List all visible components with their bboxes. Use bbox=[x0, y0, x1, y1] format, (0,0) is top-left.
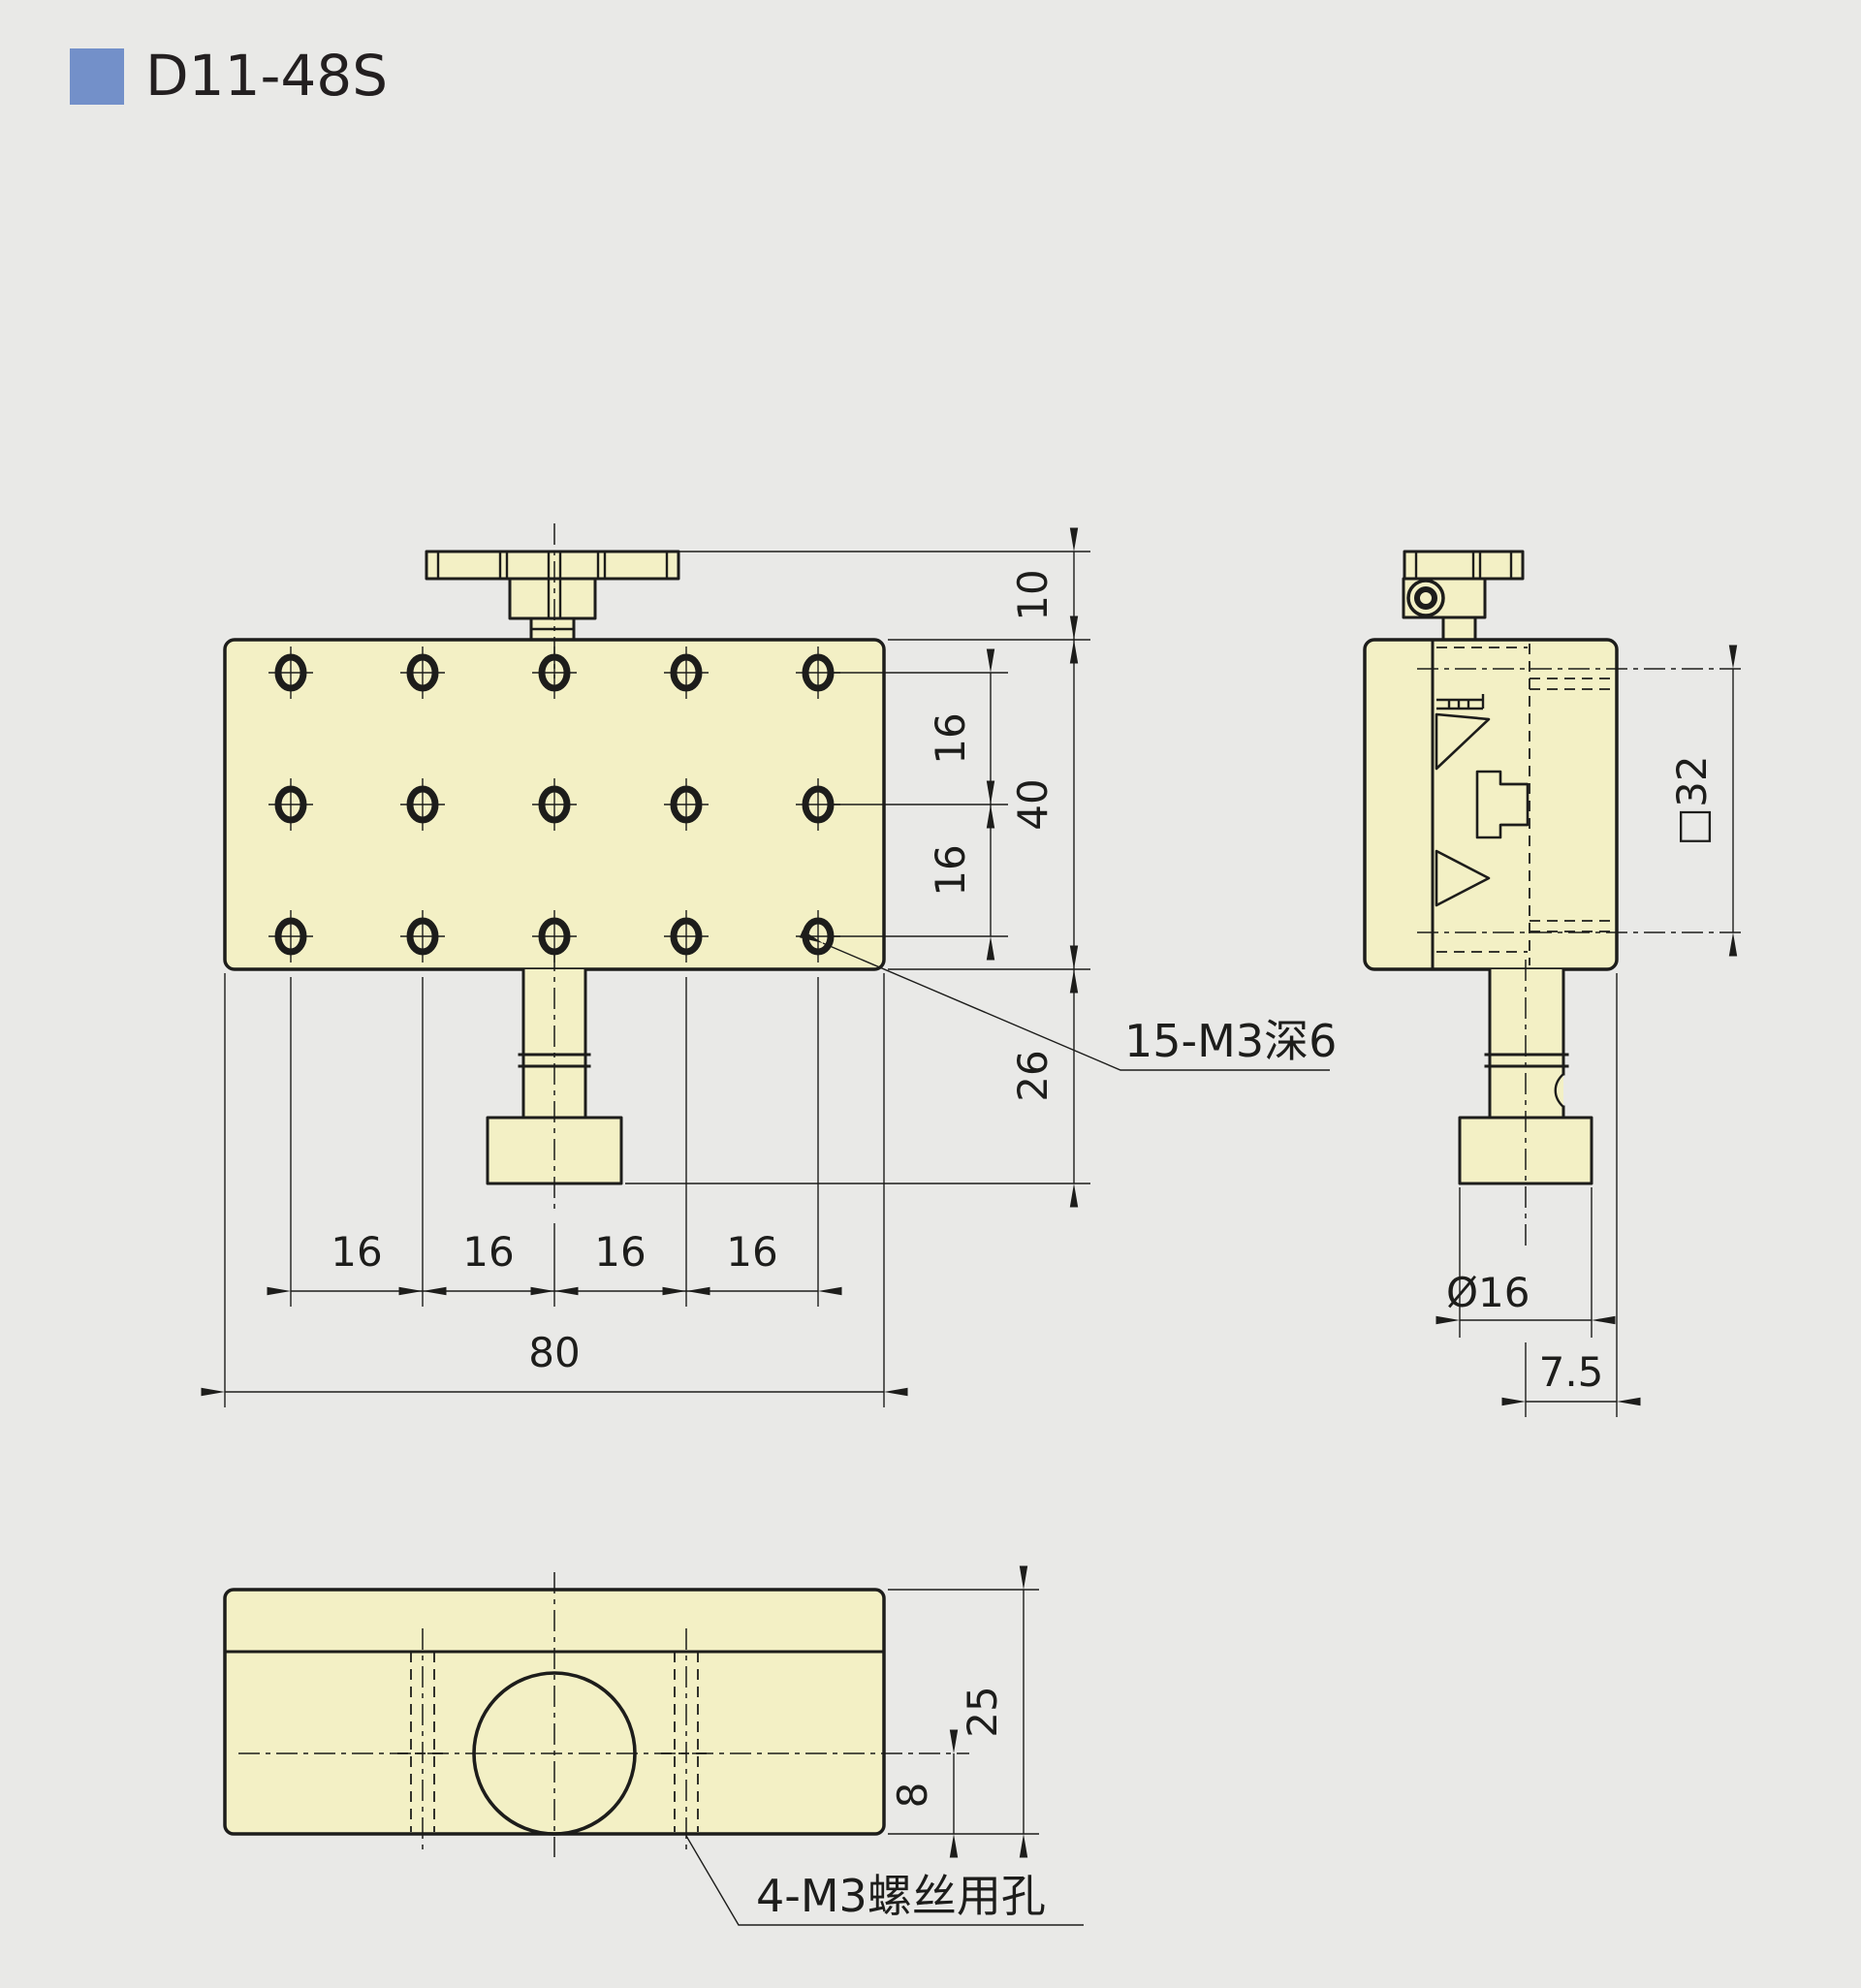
front-view: 10 40 26 16 16 16 16 bbox=[225, 523, 1337, 1407]
dim-plate-height: 40 bbox=[1009, 778, 1057, 830]
dim-col-pitch-2: 16 bbox=[462, 1228, 514, 1276]
dim-row-pitch-2: 16 bbox=[927, 844, 974, 896]
technical-drawing: D11-48S bbox=[0, 0, 1861, 1988]
dim-platform-size: □32 bbox=[1668, 755, 1716, 845]
page-title: D11-48S bbox=[145, 43, 388, 109]
dim-row-pitch-1: 16 bbox=[927, 712, 974, 764]
dim-overall-width: 80 bbox=[528, 1329, 580, 1376]
hole-spec-label: 4-M3螺丝用孔 bbox=[756, 1870, 1046, 1922]
title-block: D11-48S bbox=[70, 43, 388, 109]
bottom-dims: 25 8 bbox=[888, 1590, 1039, 1834]
dim-col-pitch-1: 16 bbox=[331, 1228, 382, 1276]
dim-col-pitch-4: 16 bbox=[726, 1228, 777, 1276]
dim-knob-diameter: Ø16 bbox=[1446, 1269, 1530, 1316]
dim-body-depth: 25 bbox=[959, 1686, 1006, 1737]
dim-stem-length: 26 bbox=[1009, 1050, 1057, 1101]
side-view: □32 Ø16 7.5 bbox=[1365, 552, 1745, 1417]
bottom-hole-callout: 4-M3螺丝用孔 bbox=[686, 1836, 1084, 1925]
dim-knob-center-height: 8 bbox=[889, 1783, 936, 1809]
dim-col-pitch-3: 16 bbox=[594, 1228, 646, 1276]
side-knob bbox=[1404, 552, 1523, 640]
side-dim-knob-dia: Ø16 bbox=[1446, 1187, 1592, 1338]
title-accent-square bbox=[70, 48, 124, 105]
dim-knob-clearance: 10 bbox=[1009, 569, 1057, 620]
dim-knob-offset: 7.5 bbox=[1539, 1348, 1604, 1396]
front-knob bbox=[426, 552, 678, 640]
bottom-view: 25 8 4-M3螺丝用孔 bbox=[225, 1572, 1084, 1925]
drawing-page: D11-48S bbox=[0, 0, 1861, 1988]
hole-spec-label: 15-M3深6 bbox=[1124, 1015, 1337, 1067]
front-hole-callout: 15-M3深6 bbox=[823, 943, 1337, 1070]
